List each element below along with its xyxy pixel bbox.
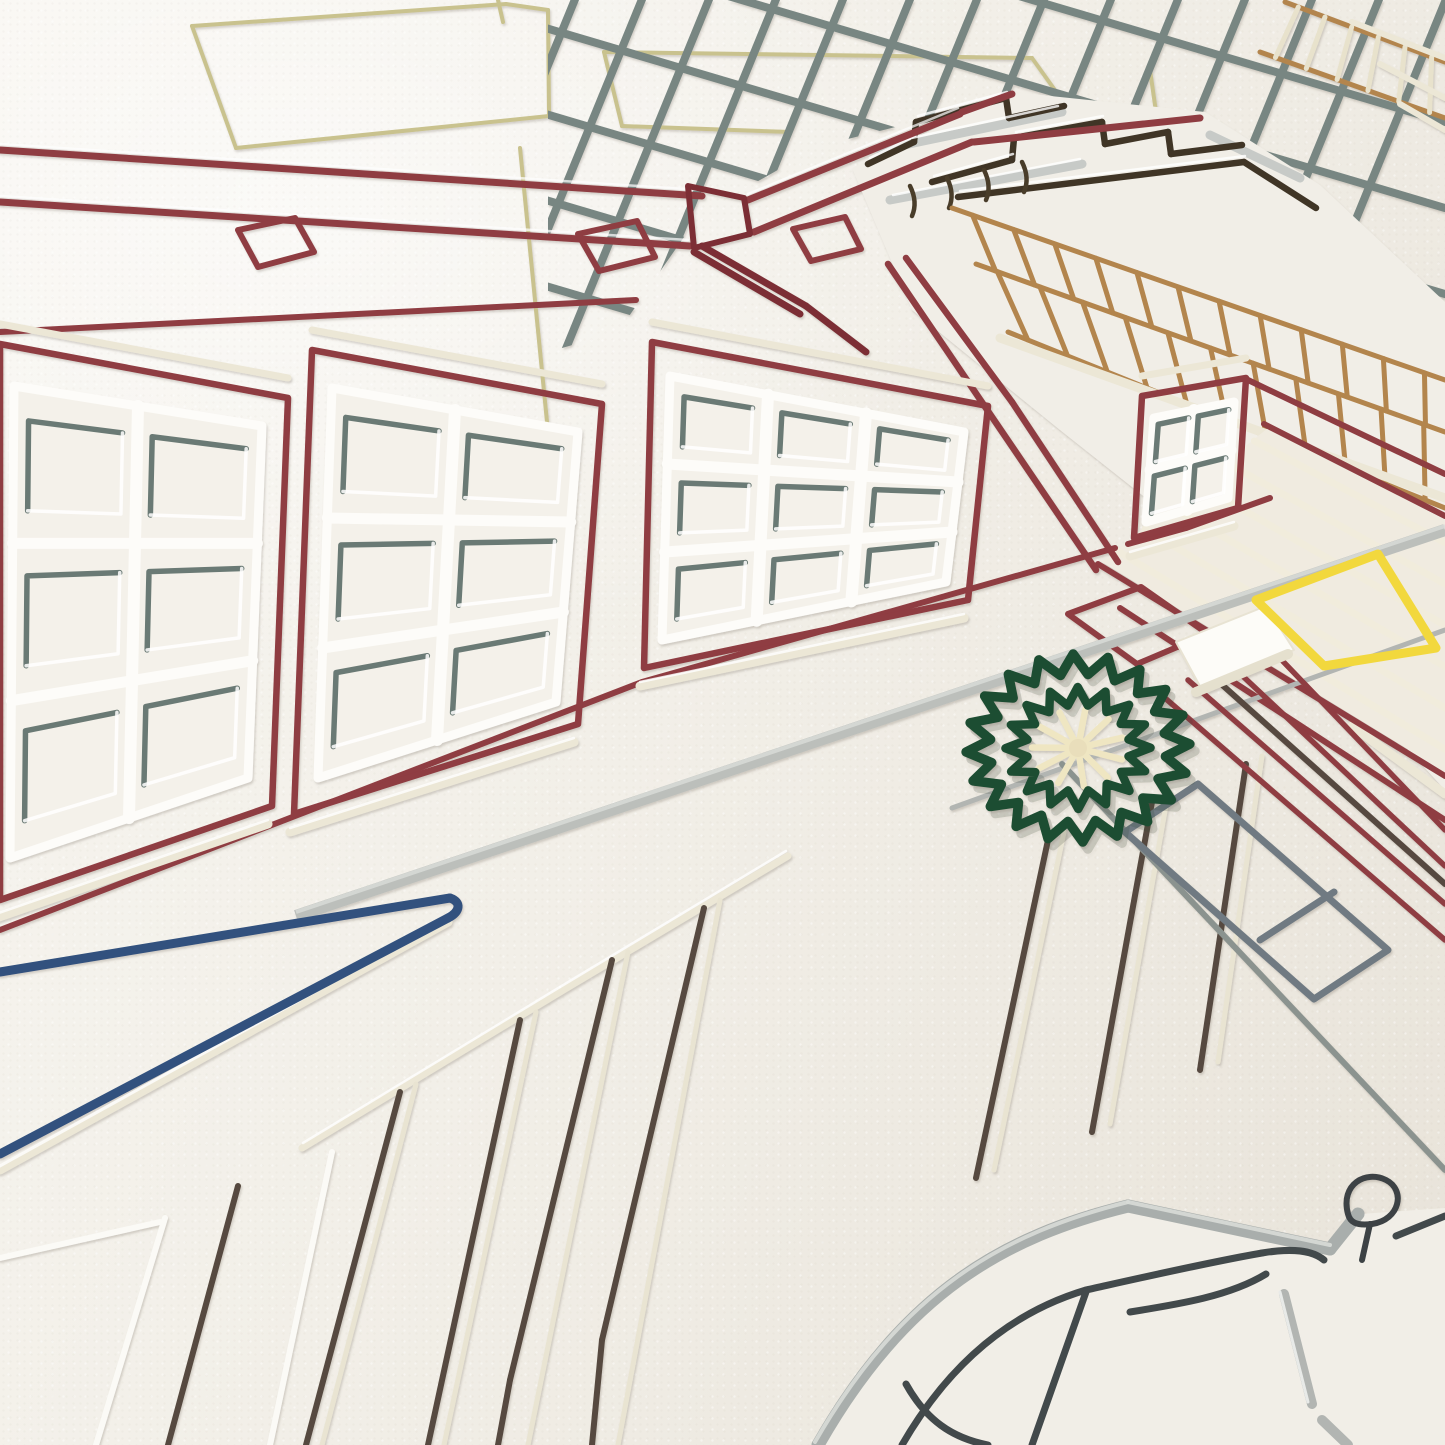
blue-awning-flag bbox=[0, 898, 458, 1154]
left-fascia-line bbox=[0, 300, 636, 332]
papercut-street-scene-artwork bbox=[0, 0, 1445, 1445]
artwork-photo-frame bbox=[0, 0, 1445, 1445]
shop-door-whites bbox=[0, 1152, 332, 1445]
window-bay-3 bbox=[640, 322, 988, 686]
window-bay-1 bbox=[0, 324, 288, 918]
shop-transom-rail bbox=[302, 856, 788, 1148]
